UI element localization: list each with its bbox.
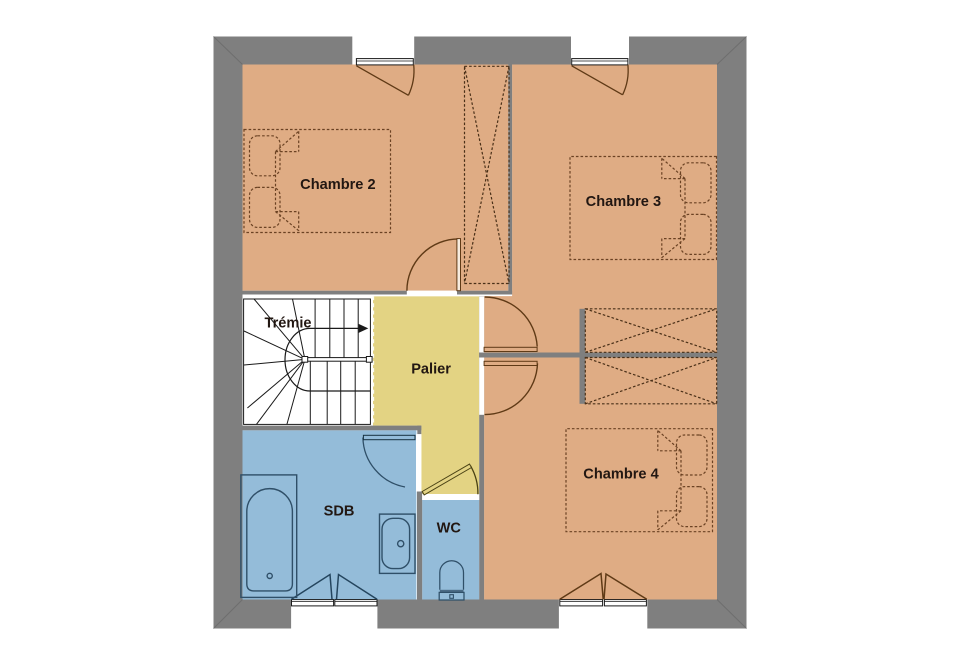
svg-text:Chambre 4: Chambre 4 (583, 466, 659, 482)
svg-text:SDB: SDB (324, 503, 355, 519)
svg-text:Chambre 3: Chambre 3 (586, 194, 661, 210)
svg-text:Trémie: Trémie (264, 316, 311, 332)
svg-text:Palier: Palier (411, 361, 451, 377)
svg-text:WC: WC (437, 521, 462, 537)
svg-text:Chambre 2: Chambre 2 (300, 177, 375, 193)
